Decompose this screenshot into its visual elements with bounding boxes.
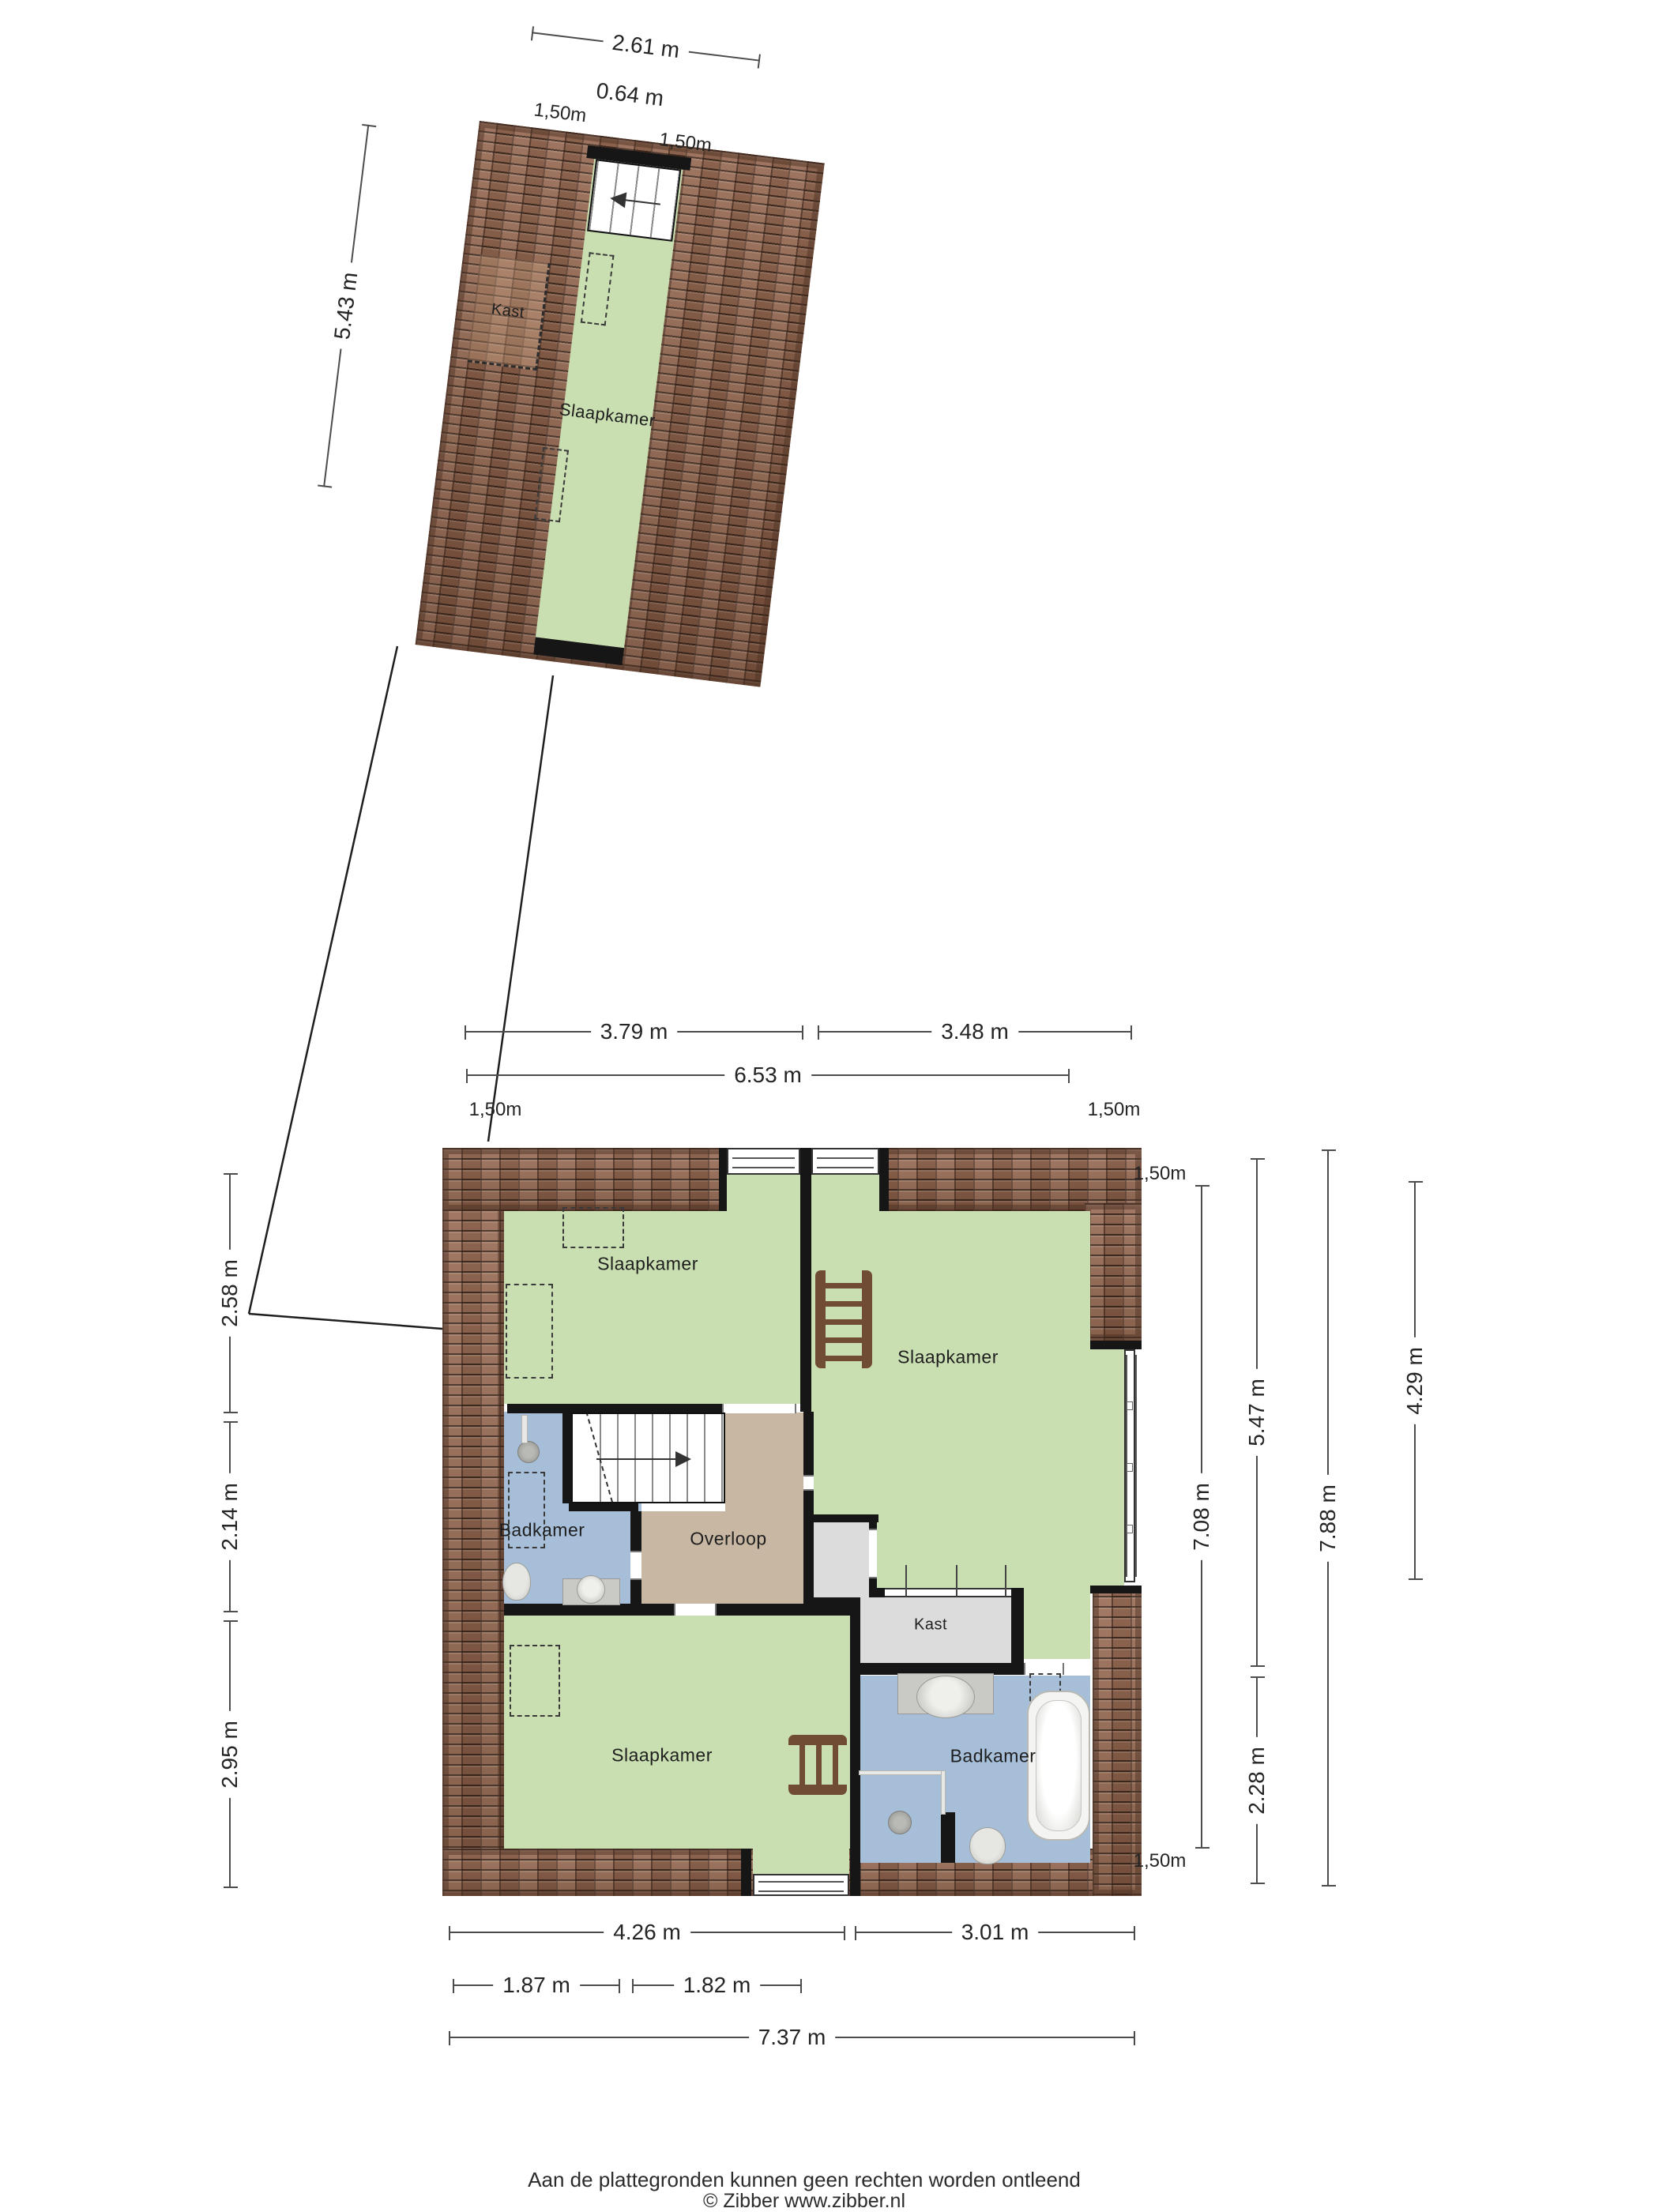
roof-tiles-right-upper [1085, 1203, 1142, 1341]
dimension-left-middle: 2.14 m [229, 1421, 231, 1612]
sink-basin [916, 1676, 975, 1718]
dimension-right-col3: 7.88 m [1327, 1149, 1329, 1887]
staircase [571, 1413, 725, 1503]
attic-plan: Kast Slaapkamer 2.61 m 0.64 m 1,50m 1,50… [416, 121, 825, 687]
closet-door-tick [1005, 1565, 1006, 1597]
window-recess [727, 1175, 800, 1211]
wall [941, 1812, 955, 1863]
closet-sliding-doors [885, 1588, 1011, 1597]
dimension-bottom-left: 4.26 m [449, 1932, 845, 1933]
knee-height-label: 1,50m [469, 1099, 522, 1121]
room-label: Slaapkamer [611, 1745, 713, 1766]
shower-pipe [941, 1770, 946, 1815]
wall [719, 1148, 727, 1211]
dimension-bottom-right: 3.01 m [855, 1932, 1135, 1933]
dimension-right-col2-bottom: 2.28 m [1256, 1676, 1258, 1884]
knee-height-label: 1,50m [1088, 1099, 1141, 1121]
dimension-top-left: 3.79 m [465, 1031, 803, 1033]
dormer-outline [510, 1645, 560, 1717]
toilet-icon [502, 1563, 531, 1601]
room-label: Badkamer [499, 1520, 585, 1541]
wall [1090, 1341, 1142, 1349]
dimension-right-col2-top: 5.47 m [1256, 1158, 1258, 1667]
window [727, 1148, 800, 1175]
dimension-bottom-sub-right: 1.82 m [632, 1984, 802, 1986]
floorplan-canvas: Kast Slaapkamer 2.61 m 0.64 m 1,50m 1,50… [0, 0, 1659, 2212]
door [722, 1404, 796, 1413]
dormer-outline [562, 1207, 624, 1248]
window [811, 1148, 879, 1175]
dimension-top-right: 3.48 m [818, 1031, 1132, 1033]
dimension-bottom-sub-left: 1.87 m [453, 1984, 620, 1986]
stairs-direction-arrow-icon [596, 1458, 690, 1460]
wall [850, 1616, 860, 1849]
shower-icon [888, 1811, 912, 1834]
wall [1090, 1586, 1142, 1593]
wall [1011, 1588, 1024, 1672]
closet-door-tick [956, 1565, 957, 1597]
bathtub-icon [1027, 1691, 1090, 1841]
loft-ladder-icon [788, 1735, 847, 1795]
room-label: Kast [914, 1616, 947, 1635]
window-recess [811, 1175, 879, 1211]
wall [562, 1413, 571, 1503]
wall [803, 1491, 814, 1514]
wall [630, 1580, 641, 1604]
dimension-top-total: 6.53 m [466, 1074, 1070, 1076]
dimension-right-col4: 4.29 m [1414, 1181, 1416, 1580]
wall [850, 1849, 860, 1896]
door [869, 1529, 877, 1578]
wall [741, 1849, 751, 1896]
dimension-left-top: 2.58 m [229, 1173, 231, 1413]
room-label: Overloop [690, 1529, 766, 1550]
wall [879, 1148, 889, 1211]
wall [630, 1511, 641, 1551]
loft-ladder-icon [815, 1270, 872, 1368]
bedroom-right-window-bay [1090, 1341, 1124, 1586]
room-label: Badkamer [950, 1746, 1036, 1767]
door [803, 1475, 814, 1491]
shower-pipe [859, 1770, 946, 1775]
knee-height-label: 1,50m [1134, 1163, 1187, 1185]
wall [803, 1412, 814, 1475]
door [674, 1604, 717, 1616]
dimension-right-col1: 7.08 m [1201, 1185, 1202, 1849]
wall [803, 1522, 814, 1604]
sink-basin [577, 1575, 605, 1604]
landing-lower [641, 1511, 803, 1604]
attic-staircase [587, 159, 681, 242]
wall [869, 1588, 885, 1597]
room-label: Slaapkamer [897, 1347, 999, 1368]
toilet-icon [969, 1827, 1006, 1864]
dimension-bottom-total: 7.37 m [449, 2037, 1135, 2038]
first-floor-plan: Slaapkamer Slaapkamer Slaapkamer Badkame… [442, 1148, 1142, 1896]
footer-copyright: © Zibber www.zibber.nl [703, 2190, 905, 2212]
footer-disclaimer: Aan de plattegronden kunnen geen rechten… [528, 2168, 1081, 2192]
dormer-outline [506, 1284, 553, 1379]
room-label: Slaapkamer [597, 1254, 698, 1275]
closet-vestibule [814, 1522, 869, 1597]
shower-pipe [521, 1415, 528, 1443]
wall [803, 1514, 878, 1522]
roof-tiles-left [442, 1148, 504, 1896]
window [753, 1874, 849, 1896]
door [630, 1551, 641, 1580]
shower-icon [517, 1441, 540, 1463]
room-label: Kast [491, 300, 526, 322]
window [1124, 1349, 1135, 1582]
closet-door-tick [905, 1565, 907, 1597]
knee-height-label: 1,50m [1134, 1850, 1187, 1872]
bedroom-bottom-left-window-bay [753, 1849, 849, 1874]
wall [800, 1148, 811, 1412]
wall [869, 1522, 877, 1529]
dimension-left-bottom: 2.95 m [229, 1620, 231, 1888]
